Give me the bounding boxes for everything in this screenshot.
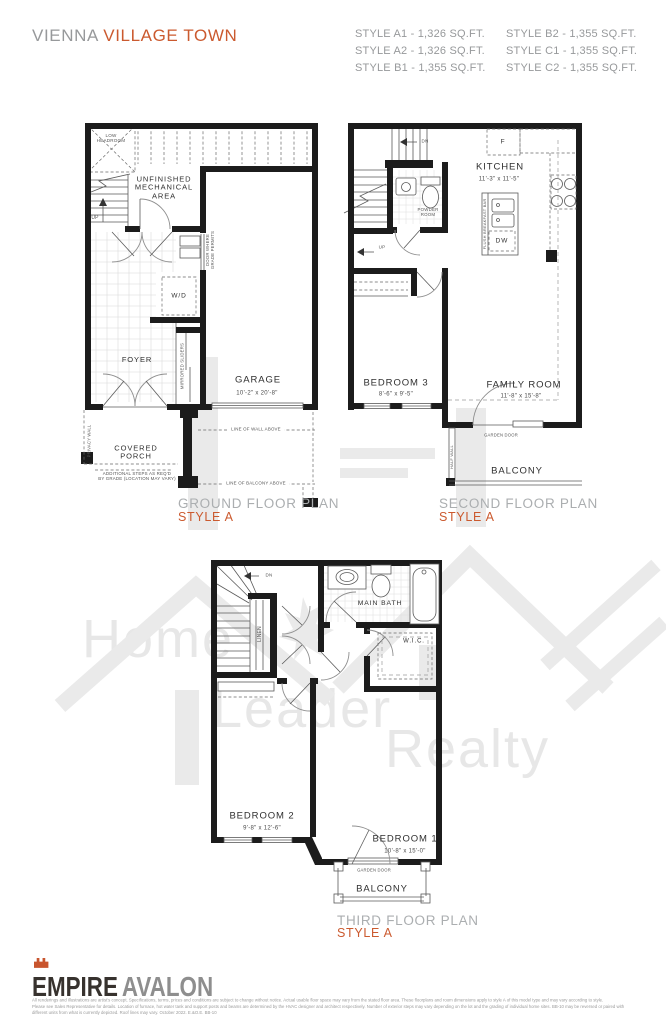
up-label-ground: UP: [91, 216, 98, 222]
mirrored-sliders-label: MIRRORED SLIDERS: [181, 343, 186, 389]
dn-label-third: DN: [266, 572, 273, 577]
second-floor-plan-style: STYLE A: [439, 510, 495, 524]
style-item: STYLE C2 - 1,355 SQ.FT.: [506, 60, 637, 77]
main-bath-label: MAIN BATH: [358, 600, 403, 608]
privacy-wall-label: PRIVACY WALL: [88, 425, 93, 458]
flush-breakfast-bar-label: FLUSH BREAKFAST BAR: [483, 199, 487, 250]
foyer-label: FOYER: [122, 356, 152, 364]
style-item: STYLE A1 - 1,326 SQ.FT.: [355, 26, 486, 43]
linen-label: LINEN: [258, 626, 264, 642]
legal-disclaimer: All renderings and illustrations are art…: [32, 997, 656, 1016]
garden-door-label-third: GARDEN DOOR: [357, 869, 391, 874]
title-model: VILLAGE TOWN: [103, 26, 237, 45]
page-title: VIENNA VILLAGE TOWN: [32, 26, 237, 46]
unfinished-mechanical-label: UNFINISHEDMECHANICALAREA: [135, 175, 193, 200]
second-floor-plan-title: SECOND FLOOR PLAN: [439, 496, 598, 511]
up-arrow-icon: [99, 198, 107, 222]
style-item: STYLE C1 - 1,355 SQ.FT.: [506, 43, 637, 60]
kitchen-dims: 11'-3" x 11'-5": [479, 177, 520, 184]
line-of-wall-note: LINE OF WALL ABOVE: [228, 428, 284, 433]
bedroom1-label: BEDROOM 1: [372, 835, 437, 846]
style-list-column-2: STYLE B2 - 1,355 SQ.FT. STYLE C1 - 1,355…: [506, 26, 637, 77]
kitchen-label: KITCHEN: [476, 163, 524, 174]
family-room-label: FAMILY ROOM: [486, 381, 561, 392]
up-arrow-icon-second: [357, 248, 374, 256]
low-headroom-label: LOWHEADROOM: [97, 133, 126, 143]
fridge-label: F: [501, 138, 506, 145]
floorplan-sheet: Home Leader Realty: [0, 0, 666, 1030]
style-list-column-1: STYLE A1 - 1,326 SQ.FT. STYLE A2 - 1,326…: [355, 26, 486, 77]
style-item: STYLE B2 - 1,355 SQ.FT.: [506, 26, 637, 43]
dishwasher-label: DW: [496, 237, 509, 244]
bedroom3-label: BEDROOM 3: [363, 379, 428, 390]
dn-arrow-icon-second: [400, 138, 417, 146]
door-where-grade-label: DOOR WHEREGRADE PERMITS: [206, 231, 216, 269]
empire-crown-icon: [34, 958, 50, 969]
title-brand: VIENNA: [32, 26, 98, 45]
dn-arrow-icon-third: [244, 572, 259, 580]
third-floor-plan-style: STYLE A: [337, 926, 393, 940]
balcony-label-third: BALCONY: [356, 885, 408, 896]
floor-plan-drawing: [0, 0, 666, 1030]
additional-steps-note: ADDITIONAL STEPS AS REQ'DBY GRADE (LOCAT…: [98, 472, 176, 482]
covered-porch-label: COVEREDPORCH: [114, 445, 157, 462]
bedroom3-dims: 8'-6" x 9'-5": [379, 392, 413, 399]
ground-floor-plan-style: STYLE A: [178, 510, 234, 524]
bedroom1-dims: 10'-8" x 15'-0": [384, 849, 425, 856]
half-wall-label: HALF WALL: [450, 445, 454, 469]
line-of-balcony-note: LINE OF BALCONY ABOVE: [223, 482, 289, 487]
style-item: STYLE B1 - 1,355 SQ.FT.: [355, 60, 486, 77]
washer-dryer-label: W/D: [171, 292, 186, 299]
family-room-dims: 11'-8" x 15'-8": [501, 394, 542, 401]
style-item: STYLE A2 - 1,326 SQ.FT.: [355, 43, 486, 60]
garden-door-label-second: GARDEN DOOR: [484, 434, 518, 439]
garage-dims: 10'-2" x 20'-8": [236, 391, 277, 398]
balcony-label-second: BALCONY: [491, 467, 543, 478]
bedroom2-label: BEDROOM 2: [229, 812, 294, 823]
ground-floor-plan-title: GROUND FLOOR PLAN: [178, 496, 339, 511]
dn-label-second: DN: [422, 138, 429, 143]
disclaimer-line: different units from what is currently d…: [32, 1010, 656, 1016]
wic-label: W.I.C.: [403, 639, 425, 646]
up-label-second: UP: [379, 244, 386, 249]
bedroom2-dims: 9'-8" x 12'-6": [243, 826, 281, 833]
powder-room-label: POWDERROOM: [418, 208, 439, 218]
garage-label: GARAGE: [235, 376, 281, 387]
